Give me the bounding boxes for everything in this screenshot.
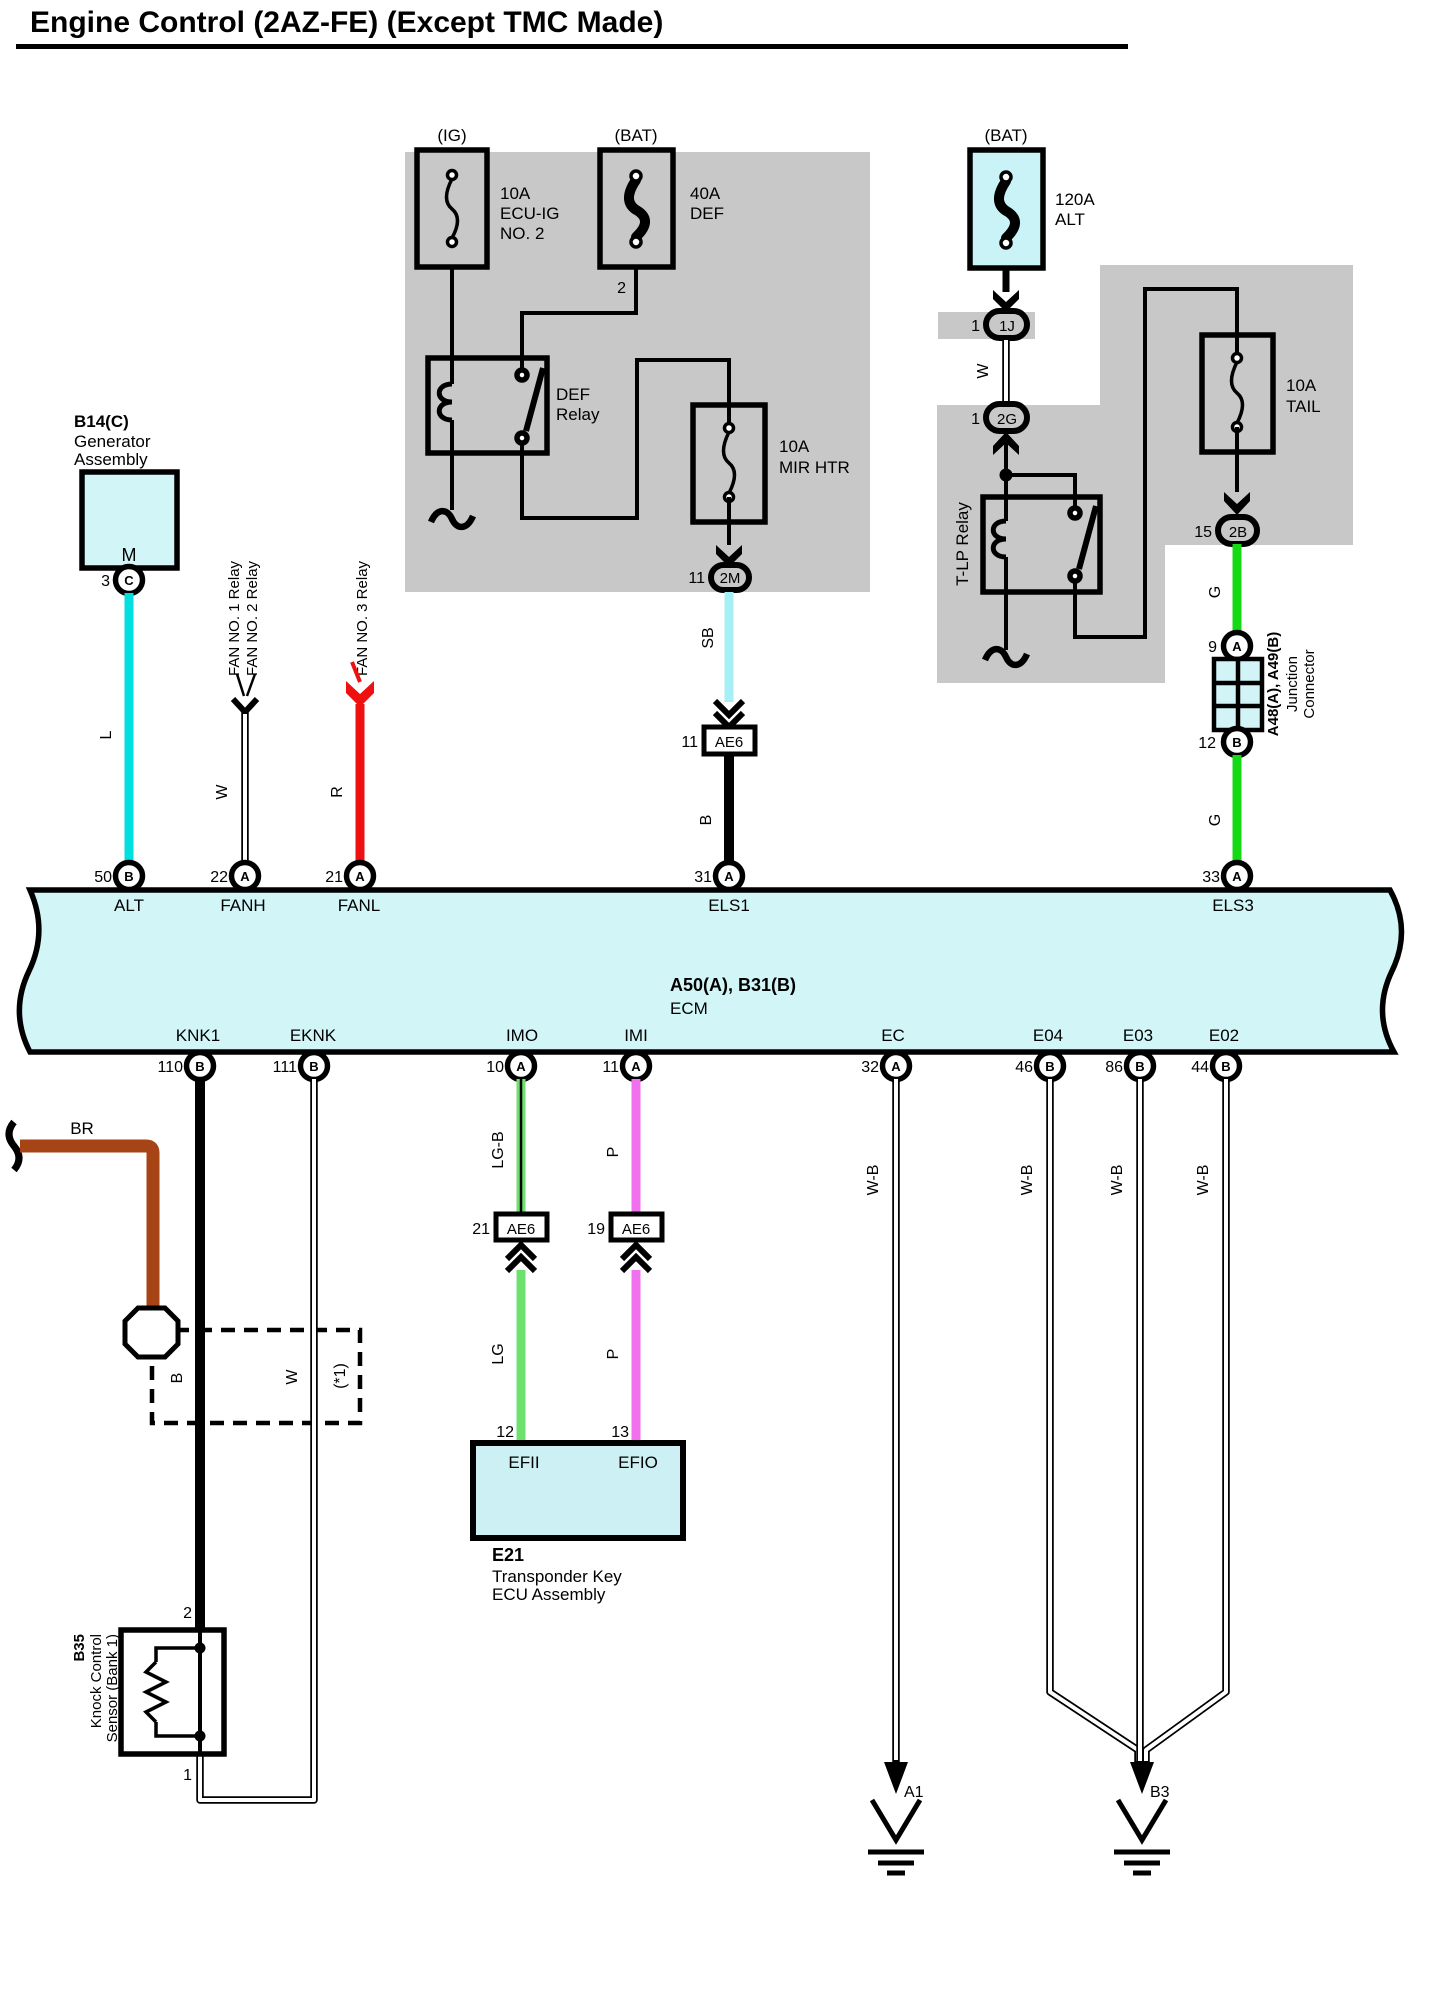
svg-text:A: A (240, 869, 250, 884)
wire-w-label: W (975, 363, 992, 379)
wire-wb-e03-label: W-B (1109, 1165, 1126, 1196)
svg-text:A: A (724, 869, 734, 884)
ecm-block: A50(A), B31(B) ECM ALT FANH FANL ELS1 EL… (19, 863, 1401, 1080)
ecm-label-fanl: FANL (338, 896, 381, 915)
wire-br-label: BR (70, 1119, 94, 1138)
svg-text:B: B (195, 1059, 204, 1074)
junction-name1: Junction (1284, 656, 1301, 712)
transponder-pin-left: 12 (496, 1424, 514, 1441)
fuse-mir-rating: 10A (779, 437, 810, 456)
transponder-pin-right-label: EFIO (618, 1453, 658, 1472)
wire-note-label: (*1) (332, 1363, 349, 1389)
connector-2b-pin: 15 (1194, 524, 1212, 541)
fuse-alt-name: ALT (1055, 210, 1085, 229)
wire-w-eknk-label: W (284, 1369, 301, 1385)
transponder-pin-right: 13 (611, 1424, 629, 1441)
junction-pin-bottom-code: B (1232, 735, 1241, 750)
junction-id: A48(A), A49(B) (1265, 632, 1282, 736)
transponder-name2: ECU Assembly (492, 1585, 606, 1604)
svg-text:32: 32 (861, 1059, 879, 1076)
page-header: Engine Control (2AZ-FE) (Except TMC Made… (16, 6, 1128, 49)
wire-lg-label: LG (490, 1343, 507, 1364)
title-underline (16, 44, 1128, 49)
ground-b3: B3 (1114, 1762, 1170, 1873)
wire-r-label: R (329, 786, 346, 798)
transponder-name1: Transponder Key (492, 1567, 622, 1586)
transponder-branch: LG-B P AE6 21 AE6 19 LG P 12 13 EFII EFI… (472, 1079, 683, 1604)
knock-sensor-name1: Knock Control (88, 1634, 105, 1728)
ecm-label-imi: IMI (624, 1026, 648, 1045)
wire-wb-ec-label: W-B (865, 1165, 882, 1196)
wire-p-label: P (605, 1349, 622, 1360)
wiring-diagram: Engine Control (2AZ-FE) (Except TMC Made… (0, 0, 1438, 1996)
torn-wire-squiggle (9, 1122, 19, 1170)
svg-text:50: 50 (94, 869, 112, 886)
ecm-label-fanh: FANH (220, 896, 265, 915)
arrow-down-icon (715, 701, 743, 715)
connector-2g-pin: 1 (971, 411, 980, 428)
connector-ae6-imo-pin: 21 (472, 1221, 490, 1238)
wire-lg-b-label: LG-B (490, 1131, 507, 1168)
wire-w-fan-label: W (214, 784, 231, 800)
knock-sensor-id: B35 (71, 1634, 88, 1662)
connector-2g-code: 2G (997, 411, 1017, 428)
knock-sensor-branch: BR B W (*1) 2 1 B35 Knock Control Sensor… (9, 1079, 360, 1800)
connector-ae6-imo-code: AE6 (507, 1221, 535, 1238)
wire-l-label: L (98, 730, 115, 739)
fuse-alt-bus: (BAT) (984, 126, 1027, 145)
svg-text:B: B (124, 869, 133, 884)
ecm-label-eknk: EKNK (290, 1026, 337, 1045)
fan2-label: FAN NO. 2 Relay (244, 560, 261, 676)
arrow-up-icon (622, 1257, 650, 1271)
tlp-relay-name: T-LP Relay (953, 502, 972, 586)
connector-ae6-imi-code: AE6 (622, 1221, 650, 1238)
ground-b3-label: B3 (1150, 1784, 1170, 1801)
svg-text:B: B (1135, 1059, 1144, 1074)
ecm-bottom-pins: B 110 B 111 A 10 A 11 A 32 B 46 B 86 B 4… (157, 1053, 1239, 1080)
generator-pin-code: C (124, 573, 134, 588)
connector-2m-pin: 11 (688, 570, 705, 587)
ecm-label-knk1: KNK1 (176, 1026, 220, 1045)
svg-text:11: 11 (602, 1059, 619, 1076)
fan3-label: FAN NO. 3 Relay (354, 560, 371, 676)
svg-text:B: B (1221, 1059, 1230, 1074)
wire-g-label: G (1207, 814, 1224, 826)
arrow-down-icon (233, 699, 257, 712)
junction-name2: Connector (1301, 649, 1318, 718)
junction-pin-top-num: 9 (1208, 639, 1217, 656)
fuse-ecu-ig-rating: 10A (500, 184, 531, 203)
svg-text:44: 44 (1191, 1059, 1209, 1076)
ecm-label-alt: ALT (114, 896, 144, 915)
connector-ae6-els-code: AE6 (715, 734, 743, 751)
arrow-up-icon (507, 1257, 535, 1271)
arrow-down-icon (346, 681, 374, 707)
fuse-ecu-ig-name1: ECU-IG (500, 204, 560, 223)
fuse-def-bus: (BAT) (614, 126, 657, 145)
svg-text:22: 22 (210, 869, 228, 886)
fuse-ecu-ig-bus: (IG) (437, 126, 466, 145)
svg-text:A: A (891, 1059, 901, 1074)
fuse-def-name: DEF (690, 204, 724, 223)
svg-text:A: A (631, 1059, 641, 1074)
svg-text:33: 33 (1202, 869, 1220, 886)
ecm-label-els1: ELS1 (708, 896, 750, 915)
connector-ae6-imi-pin: 19 (587, 1221, 605, 1238)
ecm-id: A50(A), B31(B) (670, 975, 796, 995)
def-relay-name2: Relay (556, 405, 600, 424)
ecm-label-e02: E02 (1209, 1026, 1239, 1045)
fuse-alt-rating: 120A (1055, 190, 1095, 209)
fuse-tail-rating: 10A (1286, 376, 1317, 395)
page-title: Engine Control (2AZ-FE) (Except TMC Made… (30, 6, 663, 39)
ecm-label-e03: E03 (1123, 1026, 1153, 1045)
fan1-label: FAN NO. 1 Relay (226, 560, 243, 676)
generator-symbol: M (122, 545, 137, 565)
ecm-label-els3: ELS3 (1212, 896, 1254, 915)
wire-g-label: G (1207, 586, 1224, 598)
els1-branch: 2M 11 SB AE6 11 B (681, 565, 755, 864)
ecm-top-pins: B 50 A 22 A 21 A 31 A 33 (94, 863, 1250, 890)
wire-wb-e02 (1146, 1079, 1226, 1763)
wire-wb-e02-label: W-B (1195, 1165, 1212, 1196)
wire-p-label: P (605, 1147, 622, 1158)
svg-text:A: A (1232, 869, 1242, 884)
els3-branch: G A 9 B 12 A48(A), A49(B) Junction Conne… (1198, 544, 1318, 864)
wire-b-label: B (698, 815, 715, 826)
svg-text:B: B (309, 1059, 318, 1074)
connector-2m-code: 2M (720, 570, 741, 587)
wire-br (20, 1146, 153, 1307)
svg-text:10: 10 (486, 1059, 504, 1076)
fuse-def-pin: 2 (617, 280, 626, 297)
svg-text:B: B (1045, 1059, 1054, 1074)
junction-pin-bottom-num: 12 (1198, 735, 1216, 752)
junction-pin-top-code: A (1232, 639, 1242, 654)
wiring-diagram-page: Engine Control (2AZ-FE) (Except TMC Made… (0, 0, 1438, 1996)
svg-text:110: 110 (157, 1059, 183, 1076)
fan-relay-branches: FAN NO. 1 Relay FAN NO. 2 Relay W FAN NO… (214, 560, 374, 864)
connector-2b-code: 2B (1229, 524, 1247, 541)
generator-pin-num: 3 (101, 573, 110, 590)
connector-1j-pin: 1 (971, 318, 980, 335)
svg-text:46: 46 (1015, 1059, 1033, 1076)
transponder-pin-left-label: EFII (508, 1453, 539, 1472)
generator-name1: Generator (74, 432, 151, 451)
svg-text:86: 86 (1105, 1059, 1123, 1076)
wire-b-knk-label: B (169, 1373, 186, 1384)
shield-octagon (125, 1308, 178, 1357)
svg-text:111: 111 (273, 1059, 297, 1076)
connector-1j-code: 1J (999, 318, 1015, 335)
ground-a1-label: A1 (904, 1784, 924, 1801)
knock-sensor-name2: Sensor (Bank 1) (104, 1634, 121, 1742)
wire-sb-label: SB (700, 627, 717, 648)
ecm-name: ECM (670, 999, 708, 1018)
ecm-label-e04: E04 (1033, 1026, 1063, 1045)
svg-text:21: 21 (325, 869, 343, 886)
def-relay-name1: DEF (556, 385, 590, 404)
fuse-alt: (BAT) 120A ALT (970, 126, 1095, 268)
generator-name2: Assembly (74, 450, 148, 469)
ecm-label-ec: EC (881, 1026, 905, 1045)
transponder-id: E21 (492, 1545, 524, 1565)
generator-assembly: B14(C) Generator Assembly M C 3 L (74, 412, 177, 864)
knock-pin-bottom: 1 (183, 1767, 192, 1784)
svg-text:A: A (355, 869, 365, 884)
generator-id: B14(C) (74, 412, 129, 431)
fuse-mir-name: MIR HTR (779, 458, 850, 477)
ground-branches: W-B W-B W-B W-B A1 B3 (865, 1079, 1226, 1873)
wire-wb-e04-label: W-B (1019, 1165, 1036, 1196)
ecm-label-imo: IMO (506, 1026, 538, 1045)
connector-ae6-els-pin: 11 (681, 734, 698, 751)
fuse-tail-name: TAIL (1286, 397, 1321, 416)
fuse-ecu-ig-name2: NO. 2 (500, 224, 544, 243)
knock-pin-top: 2 (183, 1605, 192, 1622)
svg-text:31: 31 (694, 869, 712, 886)
svg-text:A: A (516, 1059, 526, 1074)
fuse-def-rating: 40A (690, 184, 721, 203)
ground-a1: A1 (868, 1762, 924, 1873)
